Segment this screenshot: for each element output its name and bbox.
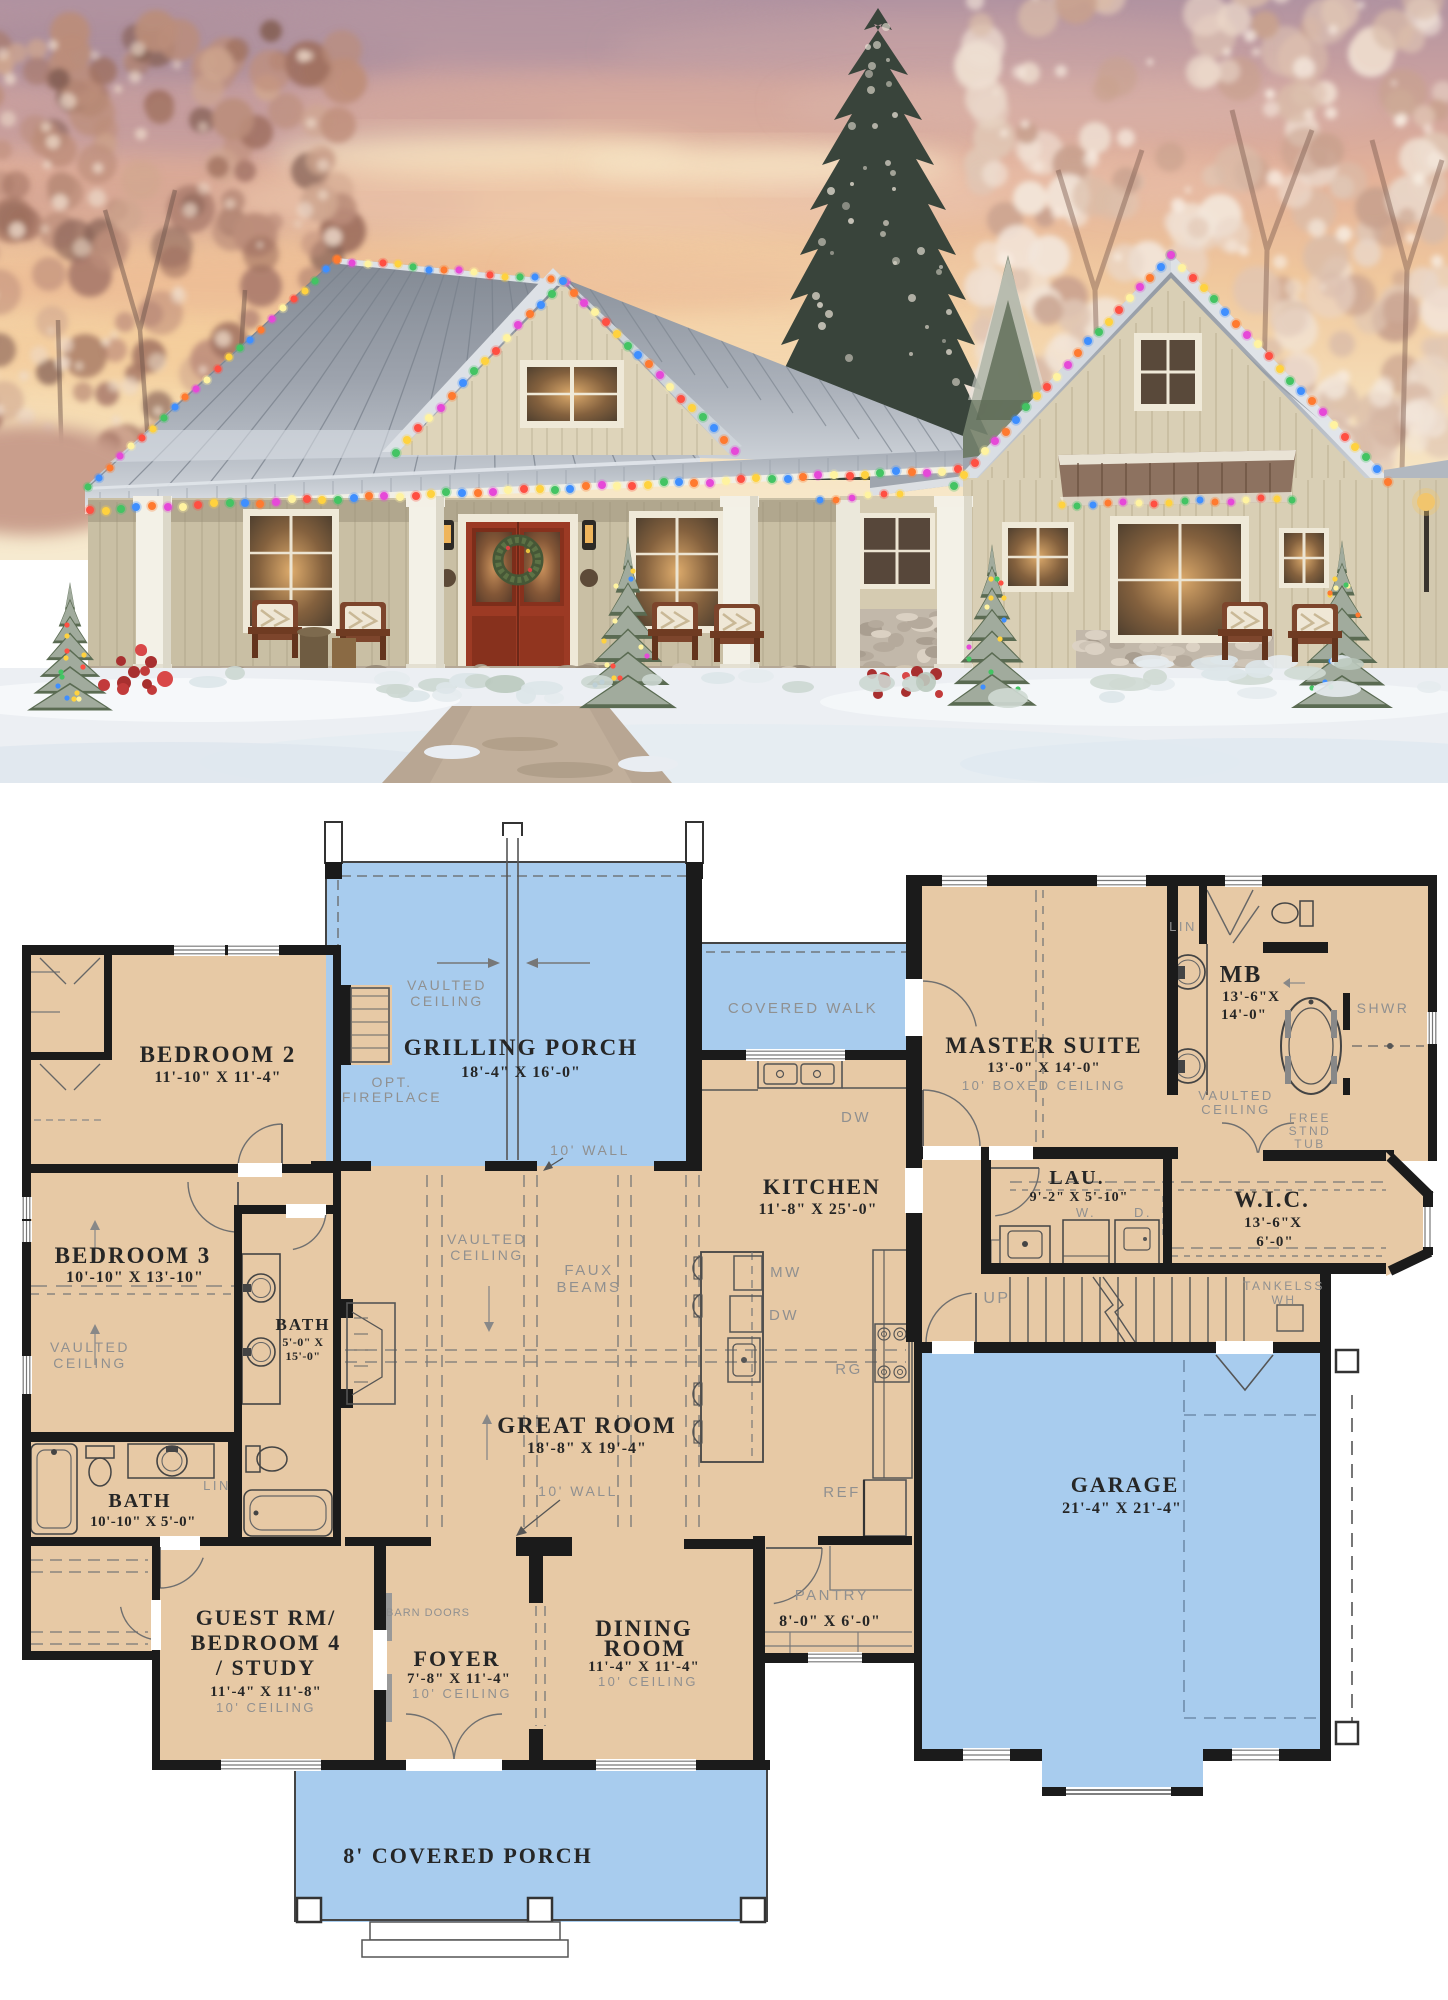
svg-text:VAULTED: VAULTED	[407, 977, 487, 993]
svg-text:CEILING: CEILING	[450, 1247, 524, 1263]
svg-text:13'-0" X 14'-0": 13'-0" X 14'-0"	[987, 1060, 1100, 1076]
svg-text:10'-10" X 5'-0": 10'-10" X 5'-0"	[90, 1514, 196, 1530]
svg-text:VAULTED: VAULTED	[447, 1231, 527, 1247]
svg-text:GRILLING PORCH: GRILLING PORCH	[404, 1035, 638, 1060]
svg-text:BARN DOORS: BARN DOORS	[386, 1607, 470, 1619]
svg-text:8' COVERED PORCH: 8' COVERED PORCH	[343, 1843, 593, 1868]
svg-text:DW: DW	[841, 1109, 871, 1126]
svg-text:ROOM: ROOM	[604, 1636, 686, 1661]
svg-text:TANKELSS: TANKELSS	[1243, 1279, 1325, 1293]
svg-text:11'-4" X 11'-8": 11'-4" X 11'-8"	[210, 1684, 322, 1700]
svg-text:FIREPLACE: FIREPLACE	[342, 1089, 442, 1105]
svg-text:10'-10" X 13'-10": 10'-10" X 13'-10"	[66, 1269, 204, 1286]
svg-text:GREAT ROOM: GREAT ROOM	[497, 1413, 677, 1438]
svg-text:BEDROOM 2: BEDROOM 2	[140, 1042, 297, 1067]
svg-text:W.: W.	[1076, 1205, 1096, 1220]
svg-text:10' CEILING: 10' CEILING	[412, 1686, 512, 1701]
svg-text:13'-6"X: 13'-6"X	[1222, 989, 1280, 1005]
svg-text:BATH: BATH	[108, 1490, 171, 1512]
svg-text:FOYER: FOYER	[414, 1646, 501, 1671]
svg-text:10' WALL: 10' WALL	[538, 1483, 618, 1499]
svg-text:MASTER SUITE: MASTER SUITE	[945, 1033, 1142, 1058]
svg-text:W.I.C.: W.I.C.	[1234, 1187, 1310, 1212]
svg-text:8'-0" X 6'-0": 8'-0" X 6'-0"	[779, 1613, 881, 1630]
svg-text:6'-0": 6'-0"	[1256, 1234, 1294, 1250]
svg-text:GARAGE: GARAGE	[1071, 1472, 1180, 1497]
svg-text:OPT.: OPT.	[371, 1074, 412, 1090]
svg-text:11'-8" X 25'-0": 11'-8" X 25'-0"	[759, 1201, 878, 1218]
svg-text:10' CEILING: 10' CEILING	[598, 1674, 698, 1689]
svg-text:STND: STND	[1289, 1124, 1332, 1138]
svg-text:COVERED WALK: COVERED WALK	[728, 1000, 878, 1017]
svg-text:10' CEILING: 10' CEILING	[216, 1700, 316, 1715]
svg-text:CEILING: CEILING	[410, 993, 484, 1009]
svg-text:GUEST RM/: GUEST RM/	[196, 1605, 336, 1630]
svg-text:CEILING: CEILING	[53, 1355, 127, 1371]
svg-text:21'-4" X 21'-4": 21'-4" X 21'-4"	[1062, 1500, 1182, 1517]
svg-text:11'-10" X 11'-4": 11'-10" X 11'-4"	[154, 1069, 281, 1086]
svg-text:18'-8" X 19'-4": 18'-8" X 19'-4"	[527, 1440, 647, 1457]
svg-text:5'-0" X: 5'-0" X	[282, 1335, 323, 1349]
svg-text:VAULTED: VAULTED	[50, 1339, 130, 1355]
svg-text:BEDROOM 4: BEDROOM 4	[191, 1630, 342, 1655]
svg-text:VAULTED: VAULTED	[1198, 1088, 1274, 1103]
svg-text:FAUX: FAUX	[564, 1262, 613, 1279]
svg-text:SHWR: SHWR	[1357, 1000, 1410, 1016]
svg-text:LIN: LIN	[1169, 919, 1197, 934]
svg-text:LAU.: LAU.	[1049, 1167, 1104, 1189]
svg-text:BEDROOM 3: BEDROOM 3	[55, 1243, 212, 1268]
svg-text:RG: RG	[835, 1361, 863, 1378]
svg-text:CEILING: CEILING	[1201, 1102, 1271, 1117]
svg-text:/ STUDY: / STUDY	[215, 1655, 316, 1680]
svg-text:MW: MW	[770, 1264, 802, 1281]
svg-text:11'-4" X 11'-4": 11'-4" X 11'-4"	[588, 1659, 700, 1675]
svg-text:10' WALL: 10' WALL	[550, 1142, 630, 1158]
svg-text:14'-0": 14'-0"	[1221, 1007, 1267, 1023]
svg-text:PANTRY: PANTRY	[795, 1587, 869, 1604]
svg-text:MB: MB	[1220, 962, 1263, 988]
svg-text:13'-6"X: 13'-6"X	[1244, 1215, 1302, 1231]
svg-text:UP: UP	[983, 1290, 1010, 1307]
svg-text:DW: DW	[769, 1307, 799, 1324]
svg-text:FREE: FREE	[1289, 1111, 1331, 1125]
svg-text:LIN: LIN	[203, 1478, 231, 1493]
svg-text:18'-4" X 16'-0": 18'-4" X 16'-0"	[461, 1064, 581, 1081]
svg-text:WH: WH	[1272, 1293, 1297, 1307]
svg-text:TUB: TUB	[1294, 1137, 1326, 1151]
svg-text:7'-8" X 11'-4": 7'-8" X 11'-4"	[407, 1671, 511, 1687]
svg-text:BEAMS: BEAMS	[556, 1279, 621, 1296]
svg-text:D.: D.	[1134, 1205, 1152, 1220]
svg-text:REF: REF	[823, 1484, 861, 1501]
svg-text:15'-0": 15'-0"	[286, 1349, 321, 1363]
svg-text:KITCHEN: KITCHEN	[763, 1174, 881, 1199]
svg-text:9'-2" X 5'-10": 9'-2" X 5'-10"	[1030, 1190, 1129, 1205]
svg-text:BATH: BATH	[276, 1315, 331, 1334]
svg-text:10' BOXED CEILING: 10' BOXED CEILING	[962, 1078, 1126, 1093]
